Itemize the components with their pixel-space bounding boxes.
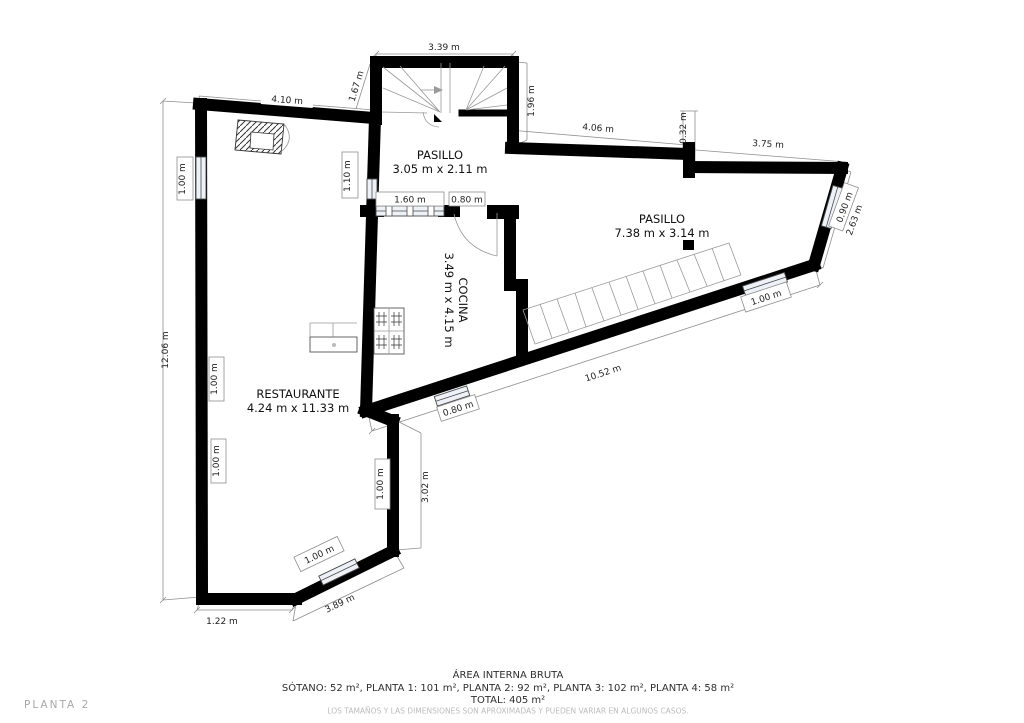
door-swing-cocina [454,213,497,256]
room-pasillo-top-name: PASILLO [417,148,463,162]
dim-0-32: 0.32 m [679,112,689,144]
stove [374,308,404,354]
room-cocina-dims: 3.49 m x 4.15 m [442,252,456,347]
dim-3-39: 3.39 m [428,43,460,53]
dim-12-06: 12.06 m [161,331,171,368]
dim-1-60: 1.60 m [394,196,426,206]
dim-1-96: 1.96 m [527,85,537,117]
room-restaurante-dims: 4.24 m x 11.33 m [247,401,349,415]
column [683,240,694,250]
room-cocina-name: COCINA [456,278,470,323]
room-restaurante-name: RESTAURANTE [256,387,339,401]
dim-3-89: 3.89 m [324,593,357,616]
stairs-upper [382,63,507,113]
dim-3-75: 3.75 m [752,139,784,151]
footer-disclaimer: LOS TAMAÑOS Y LAS DIMENSIONES SON APROXI… [327,707,688,716]
window-1-10 [367,179,377,199]
room-pasillo-right-name: PASILLO [639,212,685,226]
floor-plan-page: 3.39 m 1.67 m 1.96 m 4.10 m 4.06 m 0.32 … [0,0,1024,723]
door-swing-upper [423,112,442,127]
fireplace [235,120,289,154]
dim-1-00-left-mid: 1.00 m [210,363,220,395]
footer-area-title: ÁREA INTERNA BRUTA [453,668,564,681]
bar-counter [310,323,357,352]
footer: ÁREA INTERNA BRUTA SÓTANO: 52 m², PLANTA… [24,668,734,716]
footer-area-total: TOTAL: 405 m² [470,695,545,706]
dim-1-67: 1.67 m [348,70,367,103]
floor-plan-drawing: 3.39 m 1.67 m 1.96 m 4.10 m 4.06 m 0.32 … [0,0,1024,723]
dim-0-80-door: 0.80 m [451,196,483,206]
dim-1-00-right: 1.00 m [376,468,386,500]
footer-area-breakdown: SÓTANO: 52 m², PLANTA 1: 101 m², PLANTA … [282,681,734,694]
room-pasillo-top-dims: 3.05 m x 2.11 m [392,162,487,176]
window-1-60 [376,206,444,216]
floor-label: PLANTA 2 [24,699,90,711]
stair-direction-arrow [434,86,443,94]
dim-1-00-left-top: 1.00 m [178,163,188,195]
dim-3-02: 3.02 m [421,471,431,503]
dim-1-22: 1.22 m [206,617,238,627]
dim-1-10: 1.10 m [343,160,353,192]
window-left-top [196,157,206,199]
dim-1-00-left-low: 1.00 m [212,445,222,477]
room-pasillo-right-dims: 7.38 m x 3.14 m [614,226,709,240]
dim-4-06: 4.06 m [582,123,614,136]
